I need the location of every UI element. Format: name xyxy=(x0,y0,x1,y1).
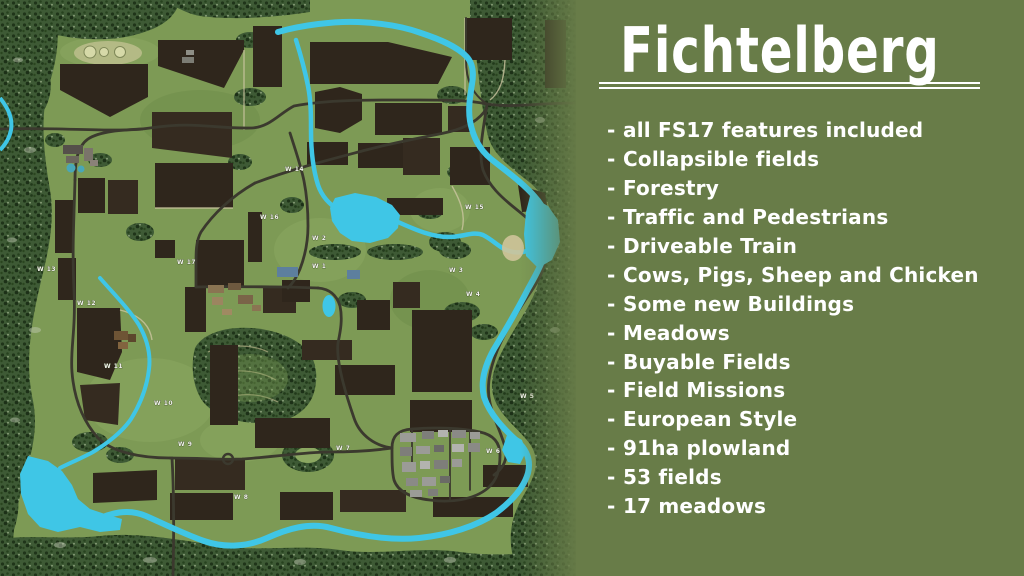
feature-text: Forestry xyxy=(623,176,719,200)
meadow-label: W 3 xyxy=(449,267,463,274)
bullet-dash: - xyxy=(607,465,623,489)
bullet-dash: - xyxy=(607,176,623,200)
bullet-dash: - xyxy=(607,234,623,258)
top-clearing xyxy=(74,41,142,65)
feature-list: -all FS17 features included -Collapsible… xyxy=(607,116,979,520)
feature-text: Some new Buildings xyxy=(623,292,854,316)
meadow-label: W 16 xyxy=(260,214,279,221)
feature-item: -Some new Buildings xyxy=(607,289,979,318)
bullet-dash: - xyxy=(607,407,623,431)
meadow-label: W 17 xyxy=(177,259,196,266)
map-area: W 1 W 2 W 3 W 4 W 5 W 6 W 7 W 8 W 9 W 10… xyxy=(0,0,576,576)
fichtelberg-map: W 1 W 2 W 3 W 4 W 5 W 6 W 7 W 8 W 9 W 10… xyxy=(0,0,576,576)
feature-text: Collapsible fields xyxy=(623,147,819,171)
feature-text: European Style xyxy=(623,407,797,431)
bullet-dash: - xyxy=(607,321,623,345)
bullet-dash: - xyxy=(607,147,623,171)
feature-item: -Driveable Train xyxy=(607,232,979,261)
feature-text: all FS17 features included xyxy=(623,118,923,142)
feature-text: 17 meadows xyxy=(623,494,766,518)
meadow-label: W 15 xyxy=(465,204,484,211)
bullet-dash: - xyxy=(607,436,623,460)
meadow-label: W 10 xyxy=(154,400,173,407)
bullet-dash: - xyxy=(607,494,623,518)
feature-text: Field Missions xyxy=(623,378,785,402)
meadow-label: W 11 xyxy=(104,363,123,370)
feature-item: -Buyable Fields xyxy=(607,347,979,376)
meadow-label: W 13 xyxy=(37,266,56,273)
feature-item: -Collapsible fields xyxy=(607,145,979,174)
meadow-label: W 8 xyxy=(234,494,248,501)
meadow-label: W 9 xyxy=(178,441,192,448)
feature-text: Buyable Fields xyxy=(623,350,791,374)
map-title: Fichtelberg xyxy=(620,14,940,87)
feature-item: -European Style xyxy=(607,405,979,434)
promo-image: W 1 W 2 W 3 W 4 W 5 W 6 W 7 W 8 W 9 W 10… xyxy=(0,0,1024,576)
feature-text: 53 fields xyxy=(623,465,722,489)
bullet-dash: - xyxy=(607,263,623,287)
bullet-dash: - xyxy=(607,292,623,316)
feature-item: -Traffic and Pedestrians xyxy=(607,203,979,232)
bullet-dash: - xyxy=(607,350,623,374)
meadow-label: W 1 xyxy=(312,263,326,270)
feature-item: -Forestry xyxy=(607,174,979,203)
feature-item: -53 fields xyxy=(607,463,979,492)
meadow-label: W 14 xyxy=(285,166,304,173)
feature-text: 91ha plowland xyxy=(623,436,790,460)
bullet-dash: - xyxy=(607,378,623,402)
feature-item: -all FS17 features included xyxy=(607,116,979,145)
bullet-dash: - xyxy=(607,118,623,142)
feature-item: -17 meadows xyxy=(607,492,979,521)
title-underline xyxy=(599,82,980,89)
feature-text: Meadows xyxy=(623,321,730,345)
meadow-label: W 4 xyxy=(466,291,480,298)
feature-text: Traffic and Pedestrians xyxy=(623,205,888,229)
feature-text: Driveable Train xyxy=(623,234,797,258)
meadow-label: W 7 xyxy=(336,445,350,452)
feature-item: -Cows, Pigs, Sheep and Chicken xyxy=(607,260,979,289)
feature-item: -Meadows xyxy=(607,318,979,347)
meadow-label: W 2 xyxy=(312,235,326,242)
feature-text: Cows, Pigs, Sheep and Chicken xyxy=(623,263,979,287)
feature-item: -Field Missions xyxy=(607,376,979,405)
bullet-dash: - xyxy=(607,205,623,229)
info-panel: Fichtelberg -all FS17 features included … xyxy=(576,0,1024,576)
meadow-label: W 12 xyxy=(77,300,96,307)
meadow-label: W 6 xyxy=(486,448,500,455)
feature-item: -91ha plowland xyxy=(607,434,979,463)
